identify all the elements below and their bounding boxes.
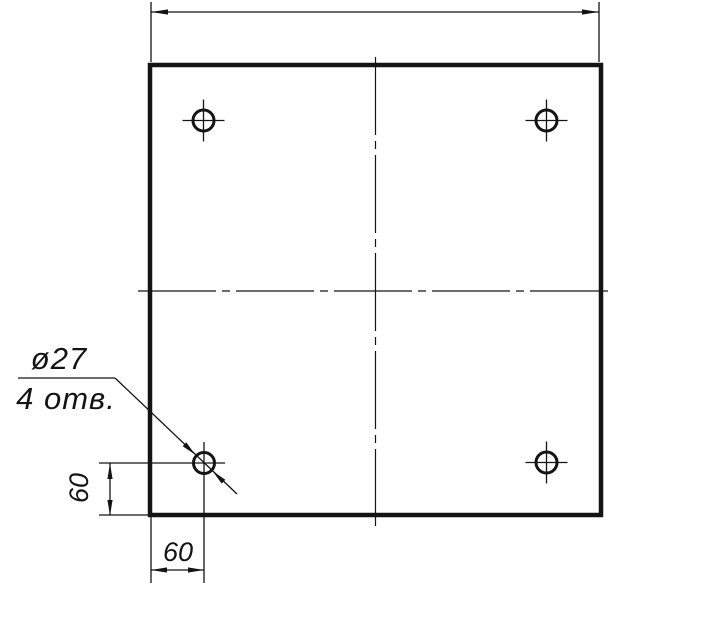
arrowhead-left (151, 9, 168, 14)
hole-count-label: 4 отв. (16, 381, 116, 416)
vertical-offset-dimension: 60 (64, 464, 149, 516)
hole-bottom-right (526, 442, 568, 484)
technical-drawing: ø27 4 отв. 60 60 (0, 0, 713, 631)
arrowhead-right (582, 9, 599, 14)
vertical-offset-label: 60 (64, 473, 94, 503)
arrowhead-up (107, 464, 112, 480)
arrowhead-down (107, 500, 112, 516)
arrowhead-right (188, 567, 204, 572)
hole-top-right (526, 100, 568, 142)
hole-top-left (183, 100, 225, 142)
arrowhead-left (151, 567, 167, 572)
drawing-canvas: ø27 4 отв. 60 60 (0, 0, 713, 631)
arrowhead-to-hole-lower (213, 471, 226, 483)
horizontal-offset-dimension: 60 (151, 517, 204, 583)
top-width-dimension (151, 2, 599, 62)
horizontal-offset-label: 60 (163, 537, 193, 567)
arrowhead-to-hole-upper (183, 442, 196, 454)
diameter-label: ø27 (31, 341, 88, 376)
